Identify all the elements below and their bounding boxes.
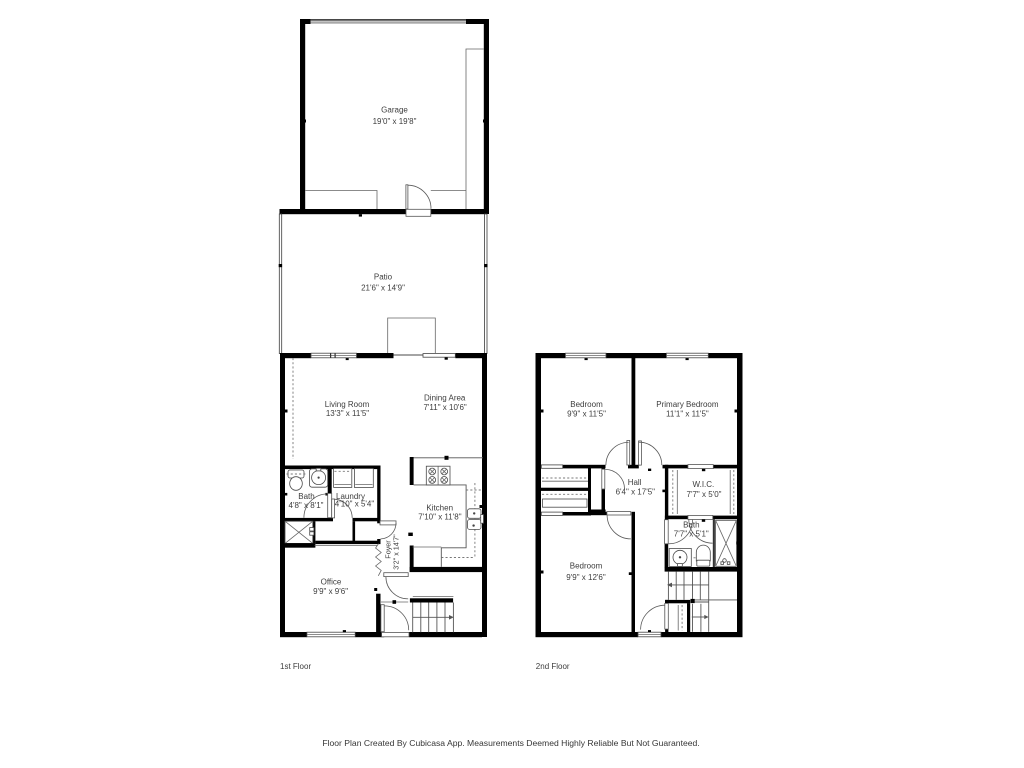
- svg-text:4'10" x 5'4": 4'10" x 5'4": [335, 500, 375, 509]
- svg-text:Primary Bedroom: Primary Bedroom: [656, 400, 719, 409]
- svg-text:W.I.C.: W.I.C.: [693, 480, 715, 489]
- svg-text:21'6" x 14'9": 21'6" x 14'9": [361, 283, 405, 292]
- svg-text:Garage: Garage: [381, 106, 408, 115]
- svg-text:13'3" x 11'5": 13'3" x 11'5": [326, 409, 369, 418]
- svg-text:Bath: Bath: [683, 520, 699, 529]
- svg-text:Office: Office: [321, 578, 342, 587]
- svg-text:7'10" x 11'8": 7'10" x 11'8": [418, 513, 461, 522]
- svg-text:Bedroom: Bedroom: [570, 400, 603, 409]
- svg-text:2nd Floor: 2nd Floor: [536, 662, 570, 671]
- svg-text:Kitchen: Kitchen: [426, 504, 453, 513]
- svg-text:7'7" x 5'1": 7'7" x 5'1": [674, 529, 709, 538]
- svg-text:9'9" x 11'5": 9'9" x 11'5": [567, 410, 606, 419]
- svg-text:1st Floor: 1st Floor: [280, 662, 311, 671]
- svg-text:Floor Plan Created By Cubicasa: Floor Plan Created By Cubicasa App. Meas…: [322, 738, 699, 748]
- svg-text:Bath: Bath: [298, 492, 314, 501]
- svg-text:7'7" x 5'0": 7'7" x 5'0": [687, 490, 722, 499]
- svg-text:4'8" x 8'1": 4'8" x 8'1": [289, 501, 324, 510]
- svg-text:6'4" x 17'5": 6'4" x 17'5": [616, 487, 656, 496]
- svg-text:19'0" x 19'8": 19'0" x 19'8": [373, 117, 417, 126]
- svg-text:Bedroom: Bedroom: [570, 562, 603, 571]
- svg-text:Living Room: Living Room: [325, 400, 370, 409]
- svg-text:9'9" x 9'6": 9'9" x 9'6": [313, 587, 348, 596]
- svg-text:Patio: Patio: [374, 273, 393, 282]
- svg-text:Dining Area: Dining Area: [424, 394, 466, 403]
- svg-text:Hall: Hall: [628, 478, 642, 487]
- svg-text:3'2" x 14'7": 3'2" x 14'7": [391, 534, 400, 570]
- svg-text:7'11" x 10'6": 7'11" x 10'6": [423, 403, 466, 412]
- svg-text:9'9" x 12'6": 9'9" x 12'6": [566, 573, 606, 582]
- svg-text:11'1" x 11'5": 11'1" x 11'5": [666, 410, 709, 419]
